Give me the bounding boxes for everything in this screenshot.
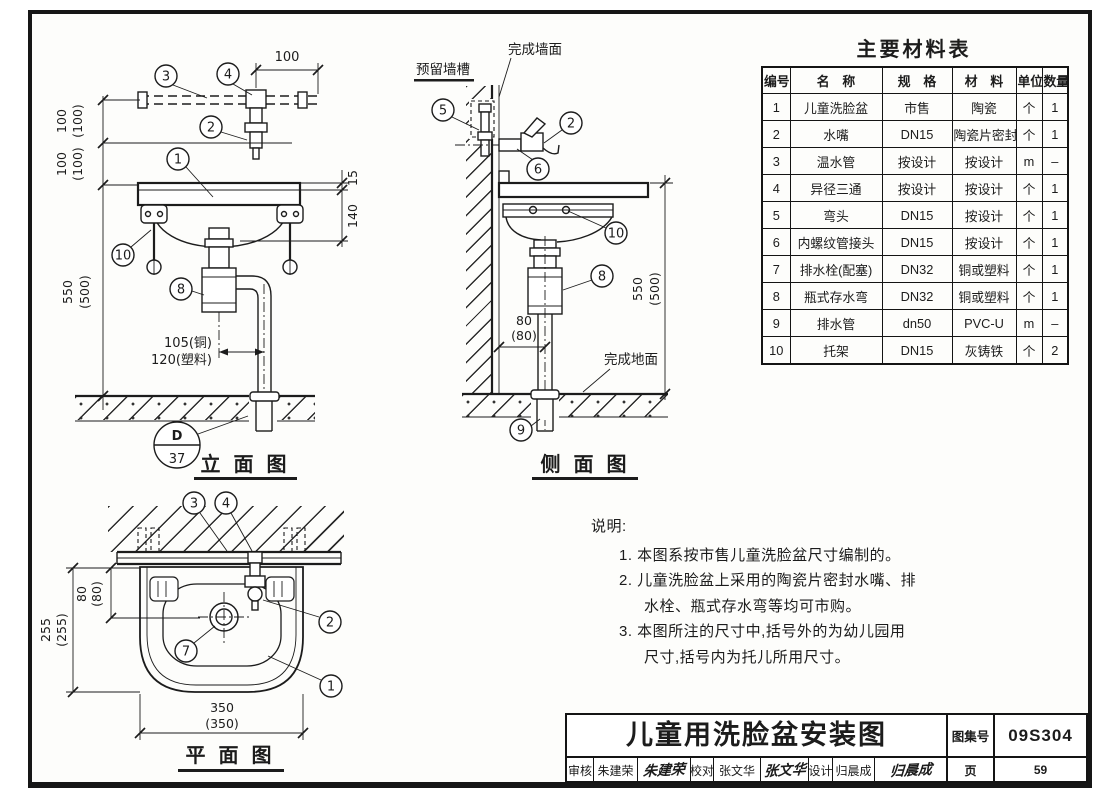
design-label: 设计	[809, 758, 833, 782]
dim-15: 15	[345, 170, 360, 186]
dim-350p: (350)	[205, 716, 239, 731]
finished-floor-label: 完成地面	[604, 352, 658, 368]
materials-table: 主要材料表 编号 名 称 规 格 材 料 单位 数量 1儿童洗脸盆市售陶瓷个1 …	[761, 33, 1067, 365]
note-1: 1. 本图系按市售儿童洗脸盆尺寸编制的。	[619, 543, 995, 569]
side-title-underline	[532, 477, 638, 480]
dim-100-top: 100	[275, 50, 300, 65]
pipe-offset-copper: 105(铜)	[164, 336, 212, 351]
callout-10-num: 10	[115, 249, 132, 264]
callout-2-num: 2	[207, 121, 215, 136]
callout-2p-num: 2	[326, 616, 334, 631]
dim-255: 255	[38, 618, 53, 642]
drawing-sheet: 100 100 (100) 100 (100) 550 (500)	[0, 0, 1119, 800]
page-label: 页	[948, 758, 995, 782]
atlas-no-label: 图集号	[948, 715, 995, 756]
atlas-no-value: 09S304	[995, 715, 1086, 756]
dim-550-side: 550	[630, 277, 645, 301]
dim-80p-side: (80)	[511, 328, 537, 343]
plan-title-underline	[178, 769, 284, 772]
elevation-view: 100 100 (100) 100 (100) 550 (500)	[54, 50, 360, 480]
table-row: 10托架DN15灰铸铁个2	[762, 337, 1068, 365]
callout-4p-num: 4	[222, 497, 230, 512]
materials-table-title: 主要材料表	[761, 33, 1067, 62]
callout-2-side: 2	[544, 112, 582, 143]
callout-8s-num: 8	[598, 270, 606, 285]
table-row: 9排水管dn50PVC-Um–	[762, 310, 1068, 337]
dim-500p-left: (500)	[77, 275, 92, 309]
callout-4-num: 4	[224, 68, 232, 83]
elevation-trap	[202, 228, 271, 394]
dim-255p: (255)	[54, 613, 69, 647]
table-row: 3温水管按设计按设计m–	[762, 148, 1068, 175]
dim-80p-plan: (80)	[89, 581, 104, 607]
dim-500p-side: (500)	[647, 272, 662, 306]
detail-sheet-no: 37	[169, 452, 186, 467]
design-name: 归晨成	[833, 758, 875, 782]
table-row: 6内螺纹管接头DN15按设计个1	[762, 229, 1068, 256]
callout-7-plan: 7	[175, 626, 215, 662]
table-row: 7排水栓(配塞)DN32铜或塑料个1	[762, 256, 1068, 283]
dim-550-left: 550	[60, 280, 75, 304]
dim-100p-left-2: (100)	[70, 147, 85, 181]
review-name: 朱建荣	[594, 758, 638, 782]
elevation-title-underline	[194, 477, 297, 480]
callout-8-num: 8	[177, 283, 185, 298]
dim-350: 350	[210, 700, 234, 715]
elevation-view-title: 立 面 图	[201, 452, 290, 476]
review-signature: 朱建荣	[638, 758, 691, 782]
check-signature-text: 张文华	[763, 759, 806, 781]
callout-8-elev: 8	[170, 278, 204, 300]
title-block: 儿童用洗脸盆安装图 图集号 09S304 审核 朱建荣 朱建荣 校对 张文华 张…	[565, 713, 1088, 783]
review-signature-text: 朱建荣	[643, 759, 686, 781]
callout-1p-num: 1	[327, 680, 335, 695]
side-view: 550 (500) 80 (80) 完成墙面 预留墙槽 完成地面 5	[414, 42, 673, 480]
dim-140: 140	[345, 204, 360, 228]
table-row: 2水嘴DN15陶瓷片密封个1	[762, 121, 1068, 148]
callout-3-num: 3	[162, 70, 170, 85]
note-2-line-2: 水栓、瓶式存水弯等均可市购。	[644, 594, 995, 620]
callout-2-plan: 2	[263, 600, 341, 633]
note-2-line-1: 2. 儿童洗脸盆上采用的陶瓷片密封水嘴、排	[619, 568, 995, 594]
table-header-row: 编号 名 称 规 格 材 料 单位 数量	[762, 67, 1068, 94]
notes: 说明: 1. 本图系按市售儿童洗脸盆尺寸编制的。 2. 儿童洗脸盆上采用的陶瓷片…	[585, 514, 995, 670]
detail-letter: D	[172, 429, 183, 444]
pipe-offset-plastic: 120(塑料)	[151, 353, 212, 368]
dim-100-left-1: 100	[54, 109, 69, 133]
callout-10s-num: 10	[608, 227, 625, 242]
plan-view: 350 (350) 255 (255) 80 (80) 3	[38, 492, 342, 772]
design-signature: 归晨成	[875, 758, 948, 782]
callout-8-side: 8	[563, 265, 613, 290]
plan-faucet	[245, 552, 265, 610]
callout-3p-num: 3	[190, 497, 198, 512]
callout-6-side: 6	[517, 149, 549, 180]
sheet-title: 儿童用洗脸盆安装图	[567, 715, 948, 756]
note-3-line-1: 3. 本图所注的尺寸中,括号外的为幼儿园用	[619, 619, 995, 645]
dim-80-side: 80	[516, 313, 532, 328]
check-name: 张文华	[714, 758, 761, 782]
notes-heading: 说明:	[591, 514, 995, 540]
dim-80-plan: 80	[74, 586, 89, 602]
callout-5-num: 5	[439, 104, 447, 119]
table-row: 5弯头DN15按设计个1	[762, 202, 1068, 229]
wall-chase-label: 预留墙槽	[416, 62, 470, 78]
finished-wall-label: 完成墙面	[508, 42, 562, 58]
callout-7-num: 7	[182, 645, 190, 660]
note-3-line-2: 尺寸,括号内为托儿所用尺寸。	[644, 645, 995, 671]
table-row: 4异径三通按设计按设计个1	[762, 175, 1068, 202]
callout-9-num: 9	[517, 424, 525, 439]
callout-3-elev: 3	[155, 65, 207, 98]
callout-1-num: 1	[174, 153, 182, 168]
elevation-faucet	[245, 90, 267, 159]
callout-2-elev: 2	[200, 116, 247, 140]
plan-drain	[198, 592, 250, 645]
plan-view-title: 平 面 图	[186, 743, 275, 767]
callout-10-elev: 10	[112, 230, 151, 266]
table-row: 1儿童洗脸盆市售陶瓷个1	[762, 94, 1068, 121]
check-label: 校对	[691, 758, 714, 782]
dim-100p-left-1: (100)	[70, 104, 85, 138]
check-signature: 张文华	[761, 758, 809, 782]
callout-6-num: 6	[534, 163, 542, 178]
callout-9-side: 9	[510, 419, 540, 441]
wall-chase-underline	[414, 79, 474, 82]
side-view-title: 侧 面 图	[541, 452, 630, 476]
page-number: 59	[995, 758, 1086, 782]
table-row: 8瓶式存水弯DN32铜或塑料个1	[762, 283, 1068, 310]
design-signature-text: 归晨成	[889, 759, 932, 781]
callout-2s-num: 2	[567, 117, 575, 132]
review-label: 审核	[567, 758, 594, 782]
side-faucet	[499, 118, 559, 154]
dim-100-left-2: 100	[54, 152, 69, 176]
